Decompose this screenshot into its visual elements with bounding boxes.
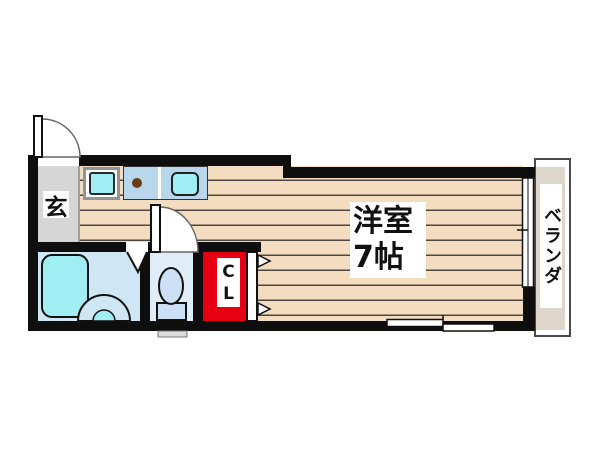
stove-burner-icon bbox=[132, 178, 142, 188]
wall-top-step bbox=[283, 155, 291, 178]
entrance-label: 玄 bbox=[43, 191, 69, 218]
kitchen-sink-icon bbox=[171, 172, 199, 196]
wall-bath-toilet bbox=[140, 252, 150, 321]
washing-machine-icon bbox=[89, 172, 115, 195]
floorplan: 玄 洋室 7帖 C L ベランダ bbox=[0, 0, 600, 450]
main-room-label: 洋室 7帖 bbox=[350, 202, 426, 278]
wall-bottom bbox=[28, 321, 535, 331]
sliding-window-right-icon bbox=[523, 178, 534, 287]
toilet-step bbox=[158, 331, 187, 337]
veranda-label: ベランダ bbox=[540, 184, 562, 308]
closet-letter-top: C bbox=[222, 261, 234, 283]
entrance-door-leaf-icon bbox=[34, 116, 42, 157]
main-room-size: 7帖 bbox=[353, 240, 404, 276]
closet-label: C L bbox=[217, 258, 240, 307]
wall-right-lower bbox=[523, 287, 535, 331]
wall-toilet-closet bbox=[193, 252, 203, 321]
veranda-label-text: ベランダ bbox=[538, 206, 564, 286]
entrance-step-edge bbox=[78, 166, 80, 242]
closet-letter-bottom: L bbox=[223, 283, 234, 305]
entrance-door-swing-icon bbox=[42, 119, 80, 157]
wall-top-left bbox=[79, 155, 291, 166]
counter-divider bbox=[158, 167, 161, 199]
washing-machine-pan-icon bbox=[83, 167, 120, 200]
wall-top-right bbox=[283, 167, 535, 178]
toilet-room-floor bbox=[150, 252, 196, 321]
entrance-label-text: 玄 bbox=[45, 188, 68, 222]
main-room-name: 洋室 bbox=[353, 204, 413, 240]
bathroom-floor bbox=[38, 252, 150, 321]
wall-bath-top bbox=[28, 242, 261, 252]
